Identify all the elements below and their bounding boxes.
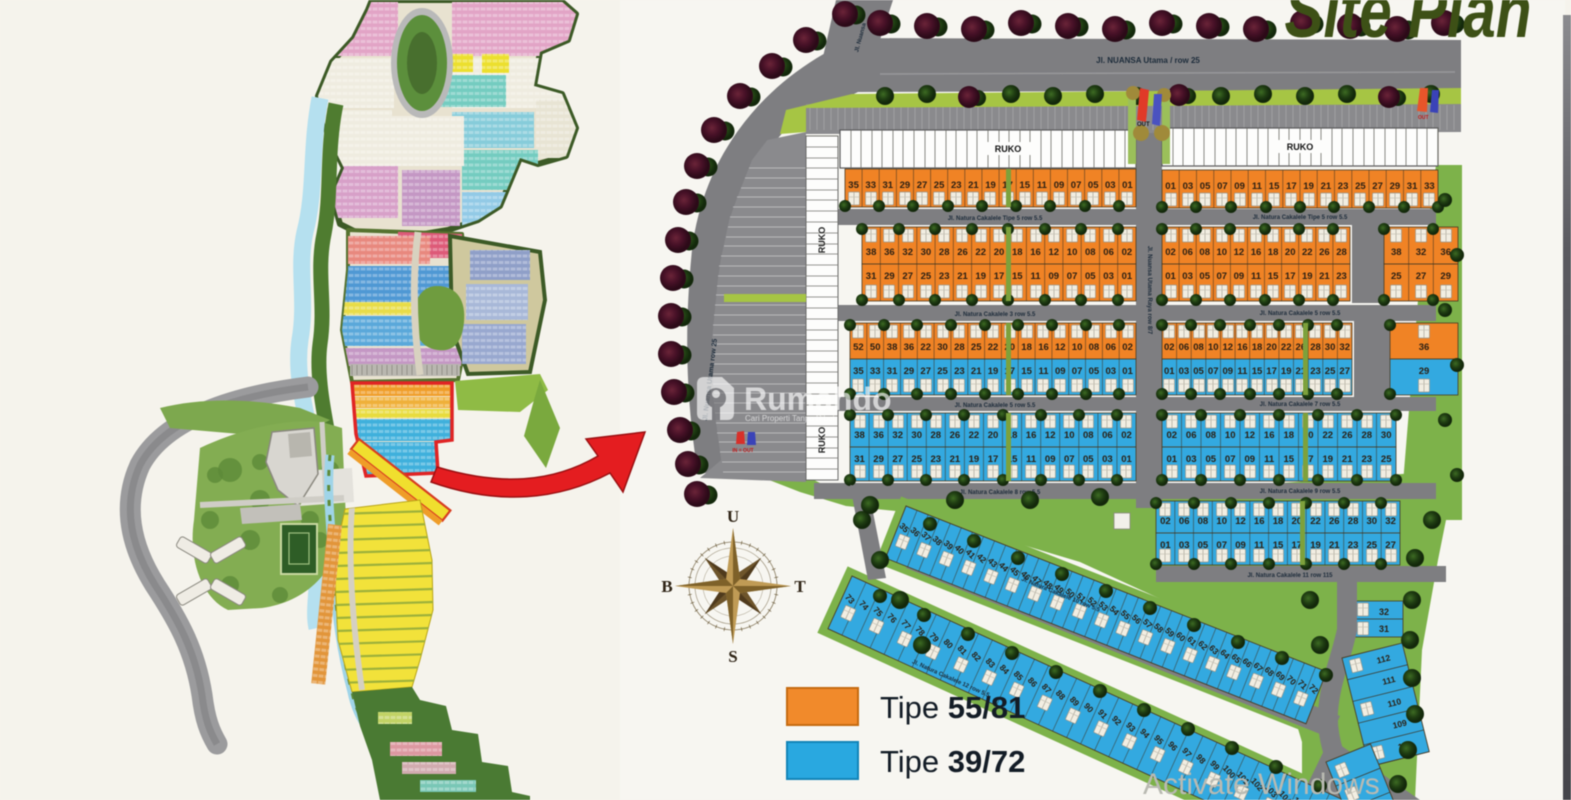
svg-text:11: 11 [1037, 180, 1048, 191]
svg-text:32: 32 [1339, 342, 1350, 353]
svg-text:10: 10 [1067, 247, 1078, 258]
svg-text:26: 26 [1329, 516, 1340, 527]
svg-text:23: 23 [1338, 181, 1349, 192]
svg-text:07: 07 [1225, 454, 1236, 465]
svg-text:12: 12 [1223, 342, 1234, 353]
svg-text:17: 17 [994, 271, 1005, 282]
svg-text:11: 11 [1251, 271, 1262, 282]
svg-text:19: 19 [1302, 271, 1313, 282]
svg-text:26: 26 [957, 247, 968, 258]
svg-text:15: 15 [1021, 366, 1032, 377]
svg-text:Jl. Nuansa Utama Raya row 8/7: Jl. Nuansa Utama Raya row 8/7 [1146, 246, 1152, 335]
svg-text:B: B [661, 577, 672, 596]
svg-text:27: 27 [1416, 271, 1427, 282]
svg-text:16: 16 [1026, 430, 1037, 441]
svg-text:07: 07 [1071, 180, 1082, 191]
svg-text:21: 21 [957, 271, 968, 282]
svg-text:29: 29 [904, 366, 915, 377]
svg-text:03: 03 [1182, 271, 1193, 282]
svg-text:03: 03 [1186, 454, 1197, 465]
svg-text:05: 05 [1206, 454, 1217, 465]
svg-text:25: 25 [971, 342, 982, 353]
svg-text:31: 31 [854, 454, 865, 465]
svg-text:12: 12 [1245, 430, 1256, 441]
svg-text:08: 08 [1206, 430, 1217, 441]
svg-text:28: 28 [954, 342, 965, 353]
svg-text:19: 19 [1281, 366, 1292, 377]
svg-text:09: 09 [1234, 271, 1245, 282]
svg-text:10: 10 [1064, 430, 1075, 441]
svg-text:T: T [794, 577, 806, 596]
svg-text:52: 52 [853, 342, 864, 353]
svg-text:RUKO: RUKO [995, 144, 1022, 154]
svg-text:28: 28 [1362, 430, 1373, 441]
svg-text:23: 23 [931, 454, 942, 465]
svg-text:Jl. Natura Cakalele 3 row 5.5: Jl. Natura Cakalele 3 row 5.5 [955, 312, 1036, 318]
svg-text:15: 15 [1269, 181, 1280, 192]
svg-text:05: 05 [1200, 181, 1211, 192]
svg-text:32: 32 [1385, 516, 1396, 527]
svg-text:31: 31 [887, 366, 898, 377]
svg-text:06: 06 [1186, 430, 1197, 441]
svg-text:Cari Properti Tanpa Ribet: Cari Properti Tanpa Ribet [745, 414, 835, 423]
svg-text:06: 06 [1179, 342, 1190, 353]
svg-text:23: 23 [951, 180, 962, 191]
svg-text:31: 31 [883, 180, 894, 191]
svg-text:36: 36 [1419, 342, 1430, 353]
svg-text:IN = OUT: IN = OUT [732, 448, 753, 454]
svg-text:26: 26 [950, 430, 961, 441]
svg-text:RUKO: RUKO [817, 227, 827, 254]
svg-text:19: 19 [969, 454, 980, 465]
svg-text:09: 09 [1234, 181, 1245, 192]
svg-text:33: 33 [870, 366, 881, 377]
svg-text:02: 02 [1122, 342, 1133, 353]
svg-text:21: 21 [971, 366, 982, 377]
svg-text:OUT: OUT [1418, 115, 1429, 121]
svg-text:25: 25 [911, 454, 922, 465]
svg-text:Jl. Natura Cakalele 5 row 5.5: Jl. Natura Cakalele 5 row 5.5 [1260, 311, 1341, 317]
svg-text:31: 31 [1379, 624, 1389, 634]
svg-text:23: 23 [1336, 271, 1347, 282]
svg-text:07: 07 [1217, 181, 1228, 192]
svg-text:18: 18 [1284, 430, 1295, 441]
svg-text:26: 26 [1319, 247, 1330, 258]
svg-text:27: 27 [920, 366, 931, 377]
svg-text:06: 06 [1182, 247, 1193, 258]
svg-text:29: 29 [884, 271, 895, 282]
svg-text:27: 27 [1339, 366, 1350, 377]
svg-text:01: 01 [1122, 180, 1133, 191]
svg-text:26: 26 [1342, 430, 1353, 441]
svg-text:20: 20 [1285, 247, 1296, 258]
svg-text:28: 28 [939, 247, 950, 258]
svg-text:28: 28 [931, 430, 942, 441]
svg-text:15: 15 [1284, 454, 1295, 465]
svg-text:16: 16 [1038, 342, 1049, 353]
svg-text:38: 38 [866, 247, 877, 258]
svg-text:06: 06 [1102, 430, 1113, 441]
svg-text:22: 22 [969, 430, 980, 441]
svg-text:50: 50 [870, 342, 881, 353]
svg-text:01: 01 [1122, 366, 1133, 377]
svg-text:31: 31 [866, 271, 877, 282]
svg-text:02: 02 [1165, 247, 1176, 258]
svg-text:Jl. Natura Cakalele Tipe 5 row: Jl. Natura Cakalele Tipe 5 row 5.5 [948, 216, 1043, 222]
svg-text:22: 22 [1281, 342, 1292, 353]
svg-text:22: 22 [920, 342, 931, 353]
svg-text:18: 18 [1012, 247, 1023, 258]
svg-text:19: 19 [988, 366, 999, 377]
svg-text:20: 20 [988, 430, 999, 441]
svg-text:19: 19 [1303, 181, 1314, 192]
svg-text:03: 03 [1179, 366, 1190, 377]
svg-text:28: 28 [1310, 342, 1321, 353]
svg-text:06: 06 [1103, 247, 1114, 258]
svg-text:38: 38 [854, 430, 865, 441]
svg-text:16: 16 [1254, 516, 1265, 527]
svg-text:11: 11 [1264, 454, 1275, 465]
svg-text:25: 25 [937, 366, 948, 377]
svg-text:08: 08 [1085, 247, 1096, 258]
svg-text:29: 29 [873, 454, 884, 465]
svg-text:36: 36 [1440, 247, 1451, 258]
svg-text:U: U [727, 507, 739, 526]
svg-text:12: 12 [1045, 430, 1056, 441]
svg-text:07: 07 [1217, 271, 1228, 282]
svg-text:21: 21 [1321, 181, 1332, 192]
svg-text:OUT: OUT [1137, 122, 1150, 128]
svg-text:Jl. Natura Cakalele Tipe 5 row: Jl. Natura Cakalele Tipe 5 row 5.5 [1253, 215, 1348, 221]
svg-text:15: 15 [1012, 271, 1023, 282]
svg-text:01: 01 [1165, 271, 1176, 282]
svg-text:01: 01 [1122, 271, 1133, 282]
svg-text:03: 03 [1102, 454, 1113, 465]
svg-text:Jl. NUANSA Utama / row 25: Jl. NUANSA Utama / row 25 [1096, 56, 1200, 65]
svg-text:35: 35 [853, 366, 864, 377]
svg-text:Jl. Natura Cakalele 5 row 5.5: Jl. Natura Cakalele 5 row 5.5 [955, 403, 1036, 409]
svg-text:09: 09 [1223, 366, 1234, 377]
svg-text:11: 11 [1038, 366, 1049, 377]
svg-text:28: 28 [1336, 247, 1347, 258]
svg-text:09: 09 [1055, 366, 1066, 377]
svg-text:07: 07 [1067, 271, 1078, 282]
svg-text:11: 11 [1030, 271, 1041, 282]
svg-text:01: 01 [1121, 454, 1132, 465]
svg-text:08: 08 [1199, 247, 1210, 258]
svg-text:21: 21 [1319, 271, 1330, 282]
svg-text:09: 09 [1054, 180, 1065, 191]
svg-text:22: 22 [975, 247, 986, 258]
svg-text:19: 19 [985, 180, 996, 191]
svg-text:11: 11 [1026, 454, 1037, 465]
svg-text:25: 25 [921, 271, 932, 282]
svg-text:30: 30 [911, 430, 922, 441]
svg-text:29: 29 [1419, 366, 1430, 377]
svg-text:12: 12 [1234, 247, 1245, 258]
svg-text:36: 36 [873, 430, 884, 441]
svg-text:32: 32 [892, 430, 903, 441]
svg-text:Site Plan: Site Plan [1284, 0, 1531, 54]
svg-text:05: 05 [1089, 366, 1100, 377]
svg-text:32: 32 [1416, 247, 1427, 258]
svg-text:38: 38 [1391, 247, 1402, 258]
svg-text:25: 25 [934, 180, 945, 191]
svg-text:18: 18 [1021, 342, 1032, 353]
svg-text:30: 30 [1367, 516, 1378, 527]
svg-text:25: 25 [1325, 366, 1336, 377]
svg-text:30: 30 [937, 342, 948, 353]
svg-text:17: 17 [1286, 181, 1297, 192]
svg-text:30: 30 [921, 247, 932, 258]
svg-text:23: 23 [1362, 454, 1373, 465]
svg-text:05: 05 [1083, 454, 1094, 465]
svg-text:02: 02 [1122, 247, 1133, 258]
svg-text:RUKO: RUKO [1287, 142, 1314, 152]
svg-text:01: 01 [1164, 366, 1175, 377]
svg-text:33: 33 [865, 180, 876, 191]
svg-text:09: 09 [1245, 454, 1256, 465]
svg-text:20: 20 [1266, 342, 1277, 353]
svg-text:02: 02 [1160, 516, 1171, 527]
svg-text:21: 21 [1342, 454, 1353, 465]
svg-text:06: 06 [1106, 342, 1117, 353]
svg-text:Activate Windows: Activate Windows [1143, 768, 1380, 800]
svg-text:01: 01 [1165, 181, 1176, 192]
svg-text:02: 02 [1164, 342, 1175, 353]
svg-text:29: 29 [900, 180, 911, 191]
svg-text:09: 09 [1045, 454, 1056, 465]
svg-text:35: 35 [848, 180, 859, 191]
svg-text:02: 02 [1121, 430, 1132, 441]
svg-text:02: 02 [1167, 430, 1178, 441]
svg-text:03: 03 [1105, 180, 1116, 191]
svg-text:12: 12 [1235, 516, 1246, 527]
svg-text:27: 27 [902, 271, 913, 282]
svg-text:22: 22 [1323, 430, 1334, 441]
svg-text:10: 10 [1072, 342, 1083, 353]
svg-text:RUKO: RUKO [817, 427, 827, 454]
svg-text:07: 07 [1064, 454, 1075, 465]
svg-text:25: 25 [1391, 271, 1402, 282]
svg-text:16: 16 [1251, 247, 1262, 258]
svg-text:16: 16 [1237, 342, 1248, 353]
svg-text:07: 07 [1208, 366, 1219, 377]
svg-text:18: 18 [1252, 342, 1263, 353]
svg-text:17: 17 [1266, 366, 1277, 377]
svg-text:22: 22 [1310, 516, 1321, 527]
svg-text:27: 27 [917, 180, 928, 191]
svg-text:15: 15 [1268, 271, 1279, 282]
svg-text:Tipe 39/72: Tipe 39/72 [880, 744, 1025, 779]
svg-text:38: 38 [887, 342, 898, 353]
svg-text:10: 10 [1217, 247, 1228, 258]
svg-text:05: 05 [1085, 271, 1096, 282]
svg-text:10: 10 [1208, 342, 1219, 353]
svg-text:21: 21 [950, 454, 961, 465]
svg-text:12: 12 [1055, 342, 1066, 353]
svg-text:10: 10 [1216, 516, 1227, 527]
svg-text:07: 07 [1072, 366, 1083, 377]
svg-text:05: 05 [1193, 366, 1204, 377]
svg-text:09: 09 [1049, 271, 1060, 282]
svg-text:Jl. Natura Cakalele 11 row 115: Jl. Natura Cakalele 11 row 115 [1247, 573, 1333, 579]
svg-text:11: 11 [1237, 366, 1248, 377]
svg-text:29: 29 [1440, 271, 1451, 282]
svg-text:28: 28 [1348, 516, 1359, 527]
svg-text:30: 30 [1325, 342, 1336, 353]
svg-text:25: 25 [1381, 454, 1392, 465]
svg-text:01: 01 [1167, 454, 1178, 465]
svg-text:08: 08 [1193, 342, 1204, 353]
svg-text:15: 15 [1252, 366, 1263, 377]
svg-text:S: S [728, 647, 737, 666]
svg-text:25: 25 [1355, 181, 1366, 192]
svg-text:29: 29 [1390, 181, 1401, 192]
svg-text:17: 17 [988, 454, 999, 465]
svg-text:10: 10 [1225, 430, 1236, 441]
svg-text:08: 08 [1083, 430, 1094, 441]
svg-text:Jl. Natura Cakalele 9 row 5.5: Jl. Natura Cakalele 9 row 5.5 [1260, 489, 1341, 495]
svg-text:21: 21 [968, 180, 979, 191]
svg-text:32: 32 [902, 247, 913, 258]
svg-text:11: 11 [1252, 181, 1263, 192]
svg-text:16: 16 [1264, 430, 1275, 441]
svg-text:22: 22 [1302, 247, 1313, 258]
svg-text:05: 05 [1199, 271, 1210, 282]
svg-text:36: 36 [904, 342, 915, 353]
svg-text:23: 23 [939, 271, 950, 282]
svg-text:Jl. Natura Cakalele 7 row 5.5: Jl. Natura Cakalele 7 row 5.5 [1260, 402, 1341, 408]
svg-text:19: 19 [1323, 454, 1334, 465]
svg-text:06: 06 [1179, 516, 1190, 527]
svg-text:36: 36 [884, 247, 895, 258]
svg-text:27: 27 [1372, 181, 1383, 192]
svg-text:27: 27 [892, 454, 903, 465]
svg-text:03: 03 [1183, 181, 1194, 192]
svg-text:20: 20 [994, 247, 1005, 258]
svg-text:30: 30 [1381, 430, 1392, 441]
svg-text:03: 03 [1106, 366, 1117, 377]
svg-text:12: 12 [1049, 247, 1060, 258]
svg-text:32: 32 [1379, 607, 1389, 617]
svg-text:22: 22 [988, 342, 999, 353]
svg-text:18: 18 [1268, 247, 1279, 258]
svg-text:17: 17 [1285, 271, 1296, 282]
svg-text:23: 23 [1310, 366, 1321, 377]
svg-text:05: 05 [1088, 180, 1099, 191]
svg-text:08: 08 [1089, 342, 1100, 353]
svg-text:08: 08 [1198, 516, 1209, 527]
svg-text:Rumahdo: Rumahdo [744, 381, 892, 417]
svg-text:15: 15 [1019, 180, 1030, 191]
svg-text:19: 19 [975, 271, 986, 282]
svg-text:Tipe 55/81: Tipe 55/81 [880, 690, 1025, 725]
svg-text:33: 33 [1424, 181, 1435, 192]
svg-text:03: 03 [1103, 271, 1114, 282]
svg-text:16: 16 [1030, 247, 1041, 258]
svg-text:23: 23 [954, 366, 965, 377]
svg-text:18: 18 [1273, 516, 1284, 527]
svg-text:31: 31 [1407, 181, 1418, 192]
